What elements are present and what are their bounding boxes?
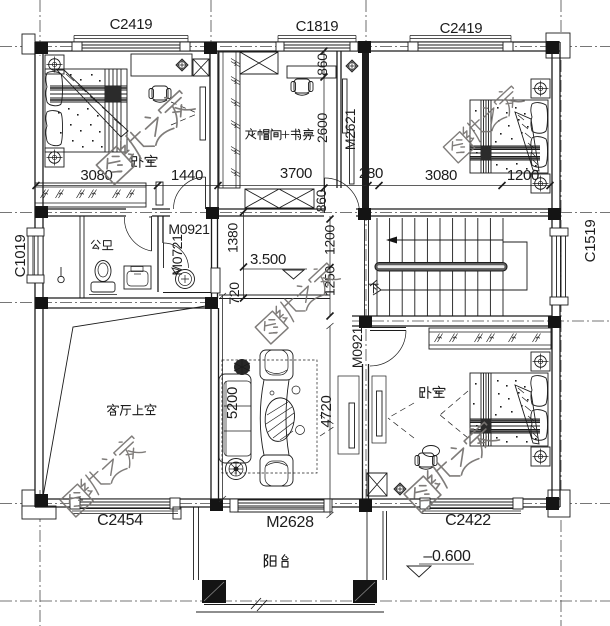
svg-text:C1019: C1019 <box>12 235 29 278</box>
svg-text:3080: 3080 <box>80 167 112 184</box>
svg-text:860: 860 <box>313 189 329 212</box>
svg-text:C2419: C2419 <box>110 16 153 33</box>
svg-text:3.500: 3.500 <box>250 251 286 268</box>
svg-text:3700: 3700 <box>280 165 312 182</box>
svg-text:C1819: C1819 <box>296 18 339 35</box>
svg-text:860: 860 <box>314 53 330 76</box>
svg-text:1380: 1380 <box>225 223 241 253</box>
svg-text:M2621: M2621 <box>342 108 358 150</box>
svg-text:1200: 1200 <box>322 225 338 255</box>
svg-text:–0.600: –0.600 <box>423 548 471 565</box>
svg-text:C1519: C1519 <box>582 220 599 263</box>
svg-text:1440: 1440 <box>171 167 203 184</box>
svg-text:C2422: C2422 <box>445 512 491 529</box>
svg-text:5200: 5200 <box>224 387 241 419</box>
svg-text:2600: 2600 <box>314 113 330 143</box>
svg-text:M0921: M0921 <box>349 326 365 368</box>
svg-text:C2419: C2419 <box>440 20 483 37</box>
svg-text:C2454: C2454 <box>97 512 143 529</box>
svg-text:1200: 1200 <box>507 167 539 184</box>
svg-text:280: 280 <box>359 165 383 182</box>
svg-text:720: 720 <box>226 282 242 305</box>
svg-text:M2628: M2628 <box>266 514 314 531</box>
svg-text:3080: 3080 <box>425 167 457 184</box>
